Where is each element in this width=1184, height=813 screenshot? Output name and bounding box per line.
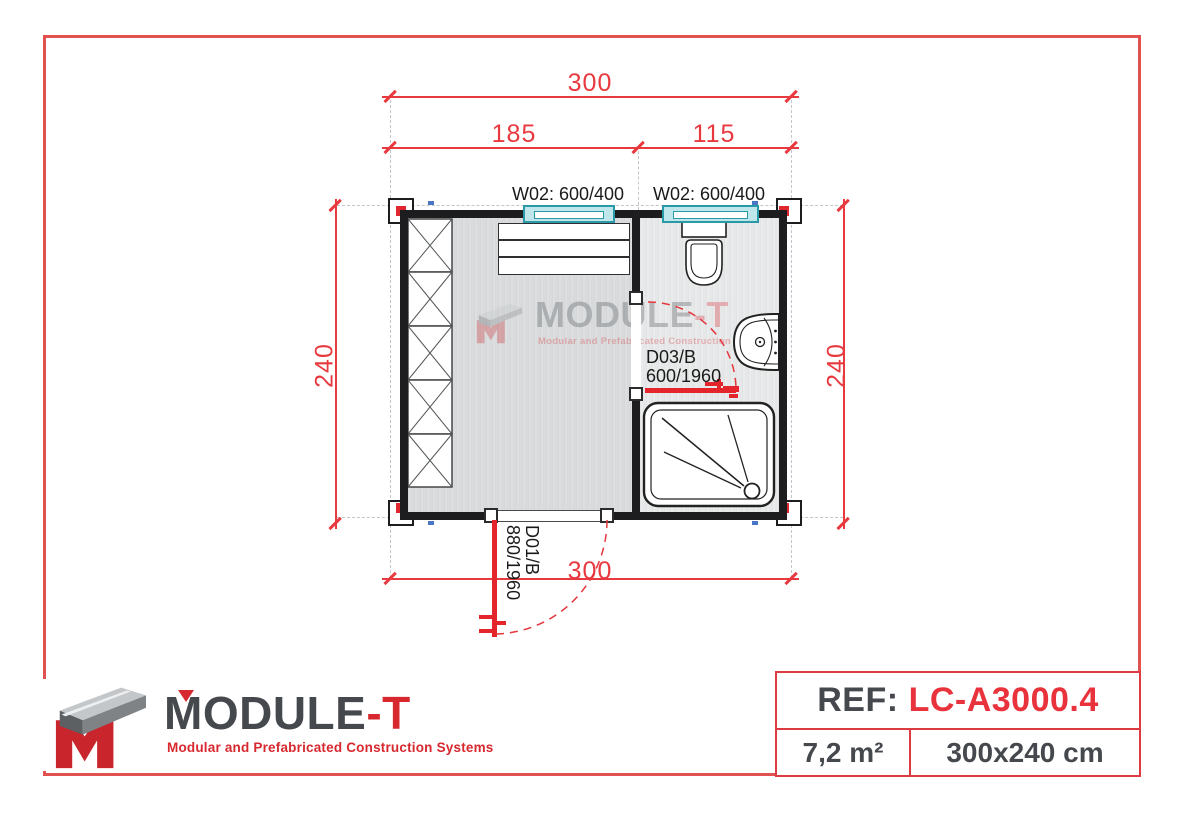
brand-main: MODULE: [164, 687, 366, 739]
snap-marker: [428, 201, 434, 205]
shelf: [498, 257, 630, 275]
entry-door-size: 880/1960: [504, 525, 523, 600]
snap-marker: [752, 521, 758, 525]
dim-left: 240: [311, 326, 340, 406]
window-right: [662, 205, 759, 223]
entry-door-label: D01/B 880/1960: [504, 525, 541, 600]
dim-top-right: 115: [664, 120, 764, 149]
window-pane: [534, 211, 604, 219]
dim-top-total: 300: [540, 69, 640, 98]
ref-label: REF:: [817, 681, 898, 720]
brand-suffix: -T: [366, 687, 410, 739]
shelf: [498, 240, 630, 257]
drawing-sheet: 300 185 115 240 240 300 MODULE-T Modular…: [0, 0, 1184, 813]
logo-m-notch: [178, 690, 194, 702]
window-pane: [673, 211, 748, 219]
toilet-icon: [681, 221, 727, 293]
brand-tagline: Modular and Prefabricated Construction S…: [167, 740, 494, 755]
window-left: [523, 205, 615, 223]
ref-specs-row: 7,2 m² 300x240 cm: [777, 730, 1139, 775]
bath-door-opening: [631, 303, 641, 387]
entry-door-code: D01/B: [523, 525, 542, 600]
snap-marker: [428, 521, 434, 525]
brand-logo-icon: [46, 680, 154, 772]
brand-wordmark: MODULE-T: [164, 686, 411, 740]
watermark-logo-icon: [473, 296, 525, 350]
ref-value: LC-A3000.4: [909, 681, 1099, 720]
ref-row: REF: LC-A3000.4: [777, 673, 1139, 730]
bath-door-code: D03/B: [646, 348, 721, 367]
wall-left: [400, 210, 408, 520]
size-value: 300x240 cm: [911, 730, 1139, 775]
dim-right: 240: [823, 326, 852, 406]
window-left-label: W02: 600/400: [498, 184, 638, 205]
shower-icon: [640, 396, 779, 512]
bath-door-size: 600/1960: [646, 367, 721, 386]
dim-bottom: 300: [540, 557, 640, 586]
bath-door-label: D03/B 600/1960: [646, 348, 721, 385]
wardrobe-icon: [407, 218, 453, 488]
door-jamb: [629, 291, 643, 305]
window-right-label: W02: 600/400: [639, 184, 779, 205]
door-jamb: [629, 387, 643, 401]
brand-logo: MODULE-T Modular and Prefabricated Const…: [46, 676, 476, 772]
ref-panel: REF: LC-A3000.4 7,2 m² 300x240 cm: [775, 671, 1141, 777]
area-value: 7,2 m²: [777, 730, 911, 775]
shelf: [498, 223, 630, 240]
dim-top-left: 185: [464, 120, 564, 149]
wall-right: [779, 210, 787, 520]
